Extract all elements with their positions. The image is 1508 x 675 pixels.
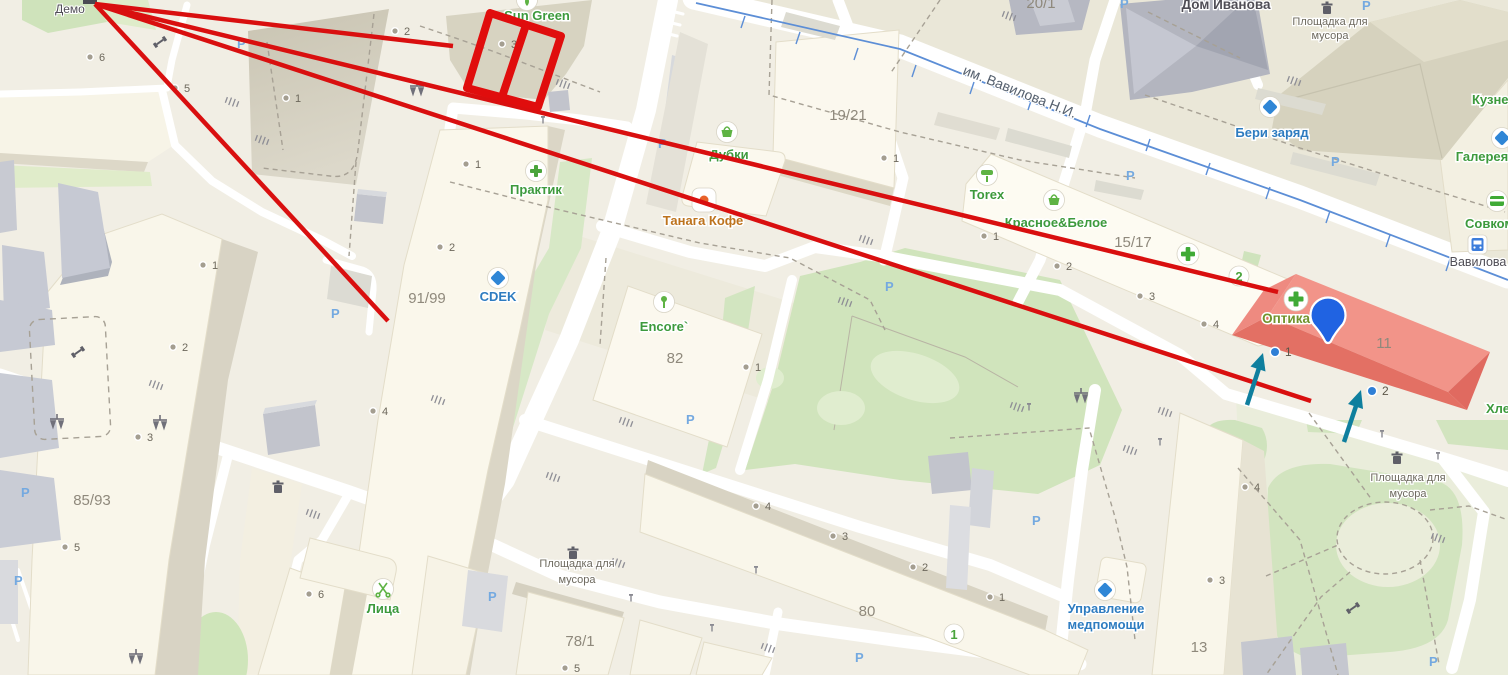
svg-text:Хлеб: Хлеб [1486,401,1508,416]
svg-text:82: 82 [667,350,684,367]
svg-text:мусора: мусора [1311,30,1349,42]
svg-text:P: P [1032,513,1041,528]
svg-text:P: P [1362,0,1371,13]
svg-text:6: 6 [318,589,324,601]
svg-text:P: P [1126,168,1135,183]
svg-text:CDEK: CDEK [480,289,517,304]
svg-text:20/1: 20/1 [1026,0,1055,12]
svg-text:78/1: 78/1 [565,633,594,650]
svg-text:4: 4 [765,501,771,513]
svg-text:мусора: мусора [558,574,596,586]
svg-text:4: 4 [1254,482,1260,494]
svg-text:Совком: Совком [1465,216,1508,231]
svg-text:P: P [14,573,23,588]
svg-text:медпомощи: медпомощи [1067,617,1144,632]
svg-text:P: P [488,589,497,604]
svg-text:Лица: Лица [367,601,400,616]
svg-text:P: P [1331,154,1340,169]
svg-text:1: 1 [295,93,301,105]
svg-text:Управление: Управление [1068,601,1145,616]
svg-text:1: 1 [1285,345,1292,359]
svg-text:4: 4 [1213,319,1219,331]
svg-text:P: P [686,412,695,427]
svg-text:15/17: 15/17 [1114,234,1152,251]
svg-text:5: 5 [574,663,580,675]
svg-text:P: P [1120,0,1129,11]
svg-text:3: 3 [842,531,848,543]
svg-text:P: P [855,650,864,665]
svg-text:19/21: 19/21 [829,107,867,124]
svg-text:мусора: мусора [1389,488,1427,500]
svg-text:1: 1 [755,362,761,374]
svg-text:Бери заряд: Бери заряд [1235,125,1309,140]
svg-text:Площадка для: Площадка для [1292,16,1367,28]
svg-text:P: P [331,306,340,321]
svg-text:1: 1 [475,159,481,171]
svg-text:1: 1 [950,627,957,642]
svg-text:2: 2 [404,26,410,38]
svg-text:Практик: Практик [510,182,562,197]
svg-text:4: 4 [382,406,388,418]
svg-text:Танага Кофе: Танага Кофе [663,213,744,228]
svg-text:2: 2 [1382,384,1389,398]
svg-text:5: 5 [74,542,80,554]
svg-text:13: 13 [1191,639,1208,656]
svg-text:Кузнец: Кузнец [1472,92,1508,107]
svg-text:Дом Иванова: Дом Иванова [1182,0,1271,12]
svg-text:Галерея: Галерея [1456,149,1508,164]
svg-text:P: P [885,279,894,294]
svg-text:P: P [1429,654,1438,669]
svg-text:Демо: Демо [55,2,85,16]
svg-text:1: 1 [993,231,999,243]
svg-text:3: 3 [1149,291,1155,303]
svg-text:2: 2 [182,342,188,354]
svg-text:80: 80 [859,603,876,620]
svg-text:91/99: 91/99 [408,290,446,307]
svg-text:Encore`: Encore` [640,319,688,334]
svg-text:1: 1 [212,260,218,272]
svg-text:11: 11 [1376,335,1392,352]
svg-text:1: 1 [999,592,1005,604]
svg-text:2: 2 [1066,261,1072,273]
svg-text:6: 6 [99,52,105,64]
svg-text:2: 2 [922,562,928,574]
svg-text:P: P [21,485,30,500]
svg-text:2: 2 [449,242,455,254]
svg-text:Площадка для: Площадка для [1370,472,1445,484]
svg-text:1: 1 [893,153,899,165]
svg-text:3: 3 [1219,575,1225,587]
svg-text:5: 5 [184,83,190,95]
svg-text:Площадка для: Площадка для [539,558,614,570]
svg-text:Torex: Torex [970,187,1005,202]
svg-text:Оптика: Оптика [1262,311,1310,326]
svg-text:3: 3 [147,432,153,444]
svg-text:85/93: 85/93 [73,492,111,509]
svg-text:Вавилова: Вавилова [1450,255,1507,269]
